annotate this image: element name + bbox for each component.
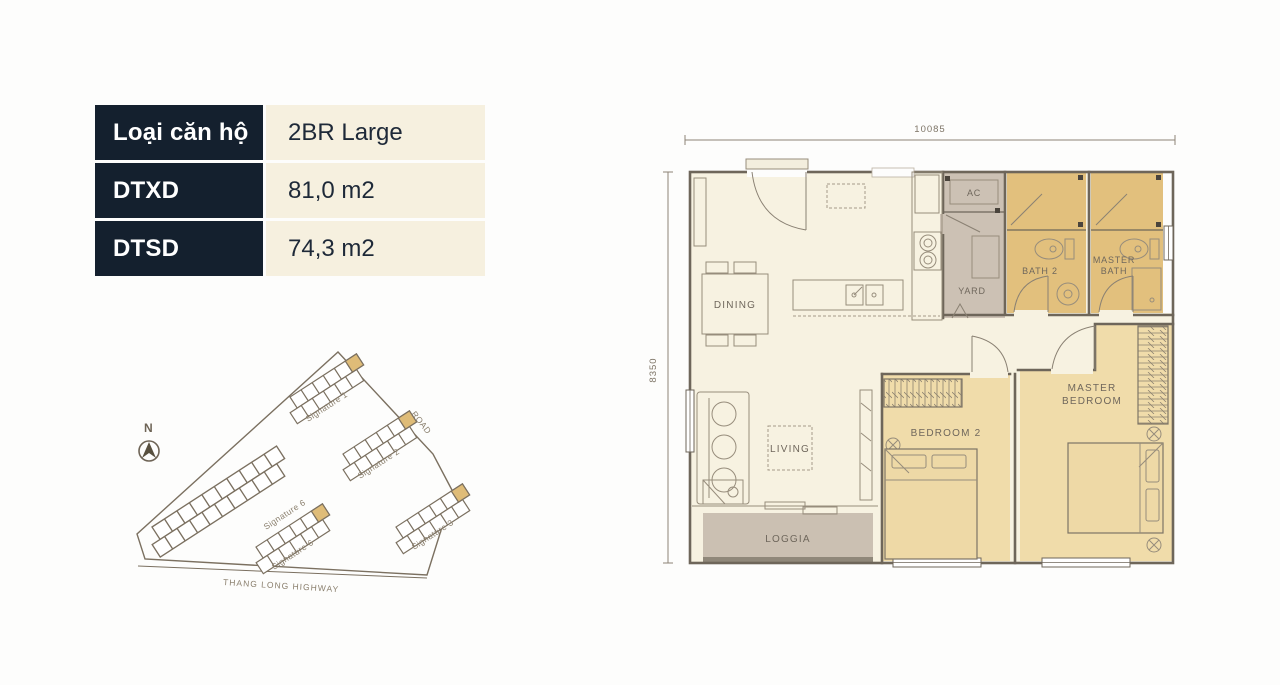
dimension-top: 10085 [685, 124, 1175, 145]
bedroom2-wardrobe [884, 379, 962, 407]
living-label: LIVING [770, 444, 810, 455]
entry-threshold [746, 159, 808, 169]
master-wardrobe [1138, 326, 1168, 424]
compass-n-label: N [144, 421, 153, 435]
row-value-dtxd: 81,0 m2 [266, 163, 485, 218]
bath2-door-opening [1014, 310, 1048, 319]
master-bath-label-2: BATH [1101, 266, 1128, 276]
master-bedroom-label-2: BEDROOM [1062, 396, 1122, 407]
bath2-label: BATH 2 [1022, 266, 1058, 276]
table-row: Loại căn hộ 2BR Large [95, 105, 485, 160]
window-living-left [686, 390, 694, 452]
compass: N [139, 421, 159, 461]
bedroom2-bed [885, 449, 977, 559]
compass-needle-icon [142, 442, 156, 458]
dimension-left: 8350 [648, 172, 673, 563]
yard-door-opening [940, 214, 946, 234]
master-bedroom-label-1: MASTER [1068, 383, 1117, 394]
bedroom2-label: BEDROOM 2 [911, 428, 982, 439]
row-label-dtxd: DTXD [95, 163, 263, 218]
dimension-left-value: 8350 [648, 357, 659, 382]
page: Loại căn hộ 2BR Large DTXD 81,0 m2 DTSD … [0, 0, 1280, 685]
table-row: DTXD 81,0 m2 [95, 163, 485, 218]
master-bed [1068, 443, 1163, 533]
master-bath-label-1: MASTER [1093, 255, 1135, 265]
floor-plan: 10085 8350 [640, 108, 1190, 583]
building-signature-3 [389, 484, 477, 554]
top-wall-niche [872, 168, 914, 177]
site-map: N Signature 1 Signature 2 Signature 3 Si… [128, 342, 488, 612]
building-signature-2 [336, 411, 424, 481]
building-signature-1 [283, 354, 371, 424]
highway-label: THANG LONG HIGHWAY [223, 577, 340, 594]
yard-label: YARD [958, 286, 986, 296]
ac-label: AC [967, 188, 981, 198]
bedroom2-door-opening [970, 369, 1008, 378]
table-row: DTSD 74,3 m2 [95, 221, 485, 276]
loggia-label: LOGGIA [765, 534, 811, 545]
master-bath-door-opening [1099, 310, 1133, 319]
master-door-opening [1051, 365, 1093, 374]
floor-master-bath [1091, 172, 1163, 313]
row-value-dtsd: 74,3 m2 [266, 221, 485, 276]
row-label-dtsd: DTSD [95, 221, 263, 276]
dining-label: DINING [714, 300, 756, 311]
dimension-top-value: 10085 [914, 124, 945, 135]
window-master-bedroom [1042, 558, 1130, 567]
apartment-info-table: Loại căn hộ 2BR Large DTXD 81,0 m2 DTSD … [95, 105, 485, 279]
row-value-unit-type: 2BR Large [266, 105, 485, 160]
row-label-unit-type: Loại căn hộ [95, 105, 263, 160]
window-duct-vent [1164, 226, 1173, 260]
